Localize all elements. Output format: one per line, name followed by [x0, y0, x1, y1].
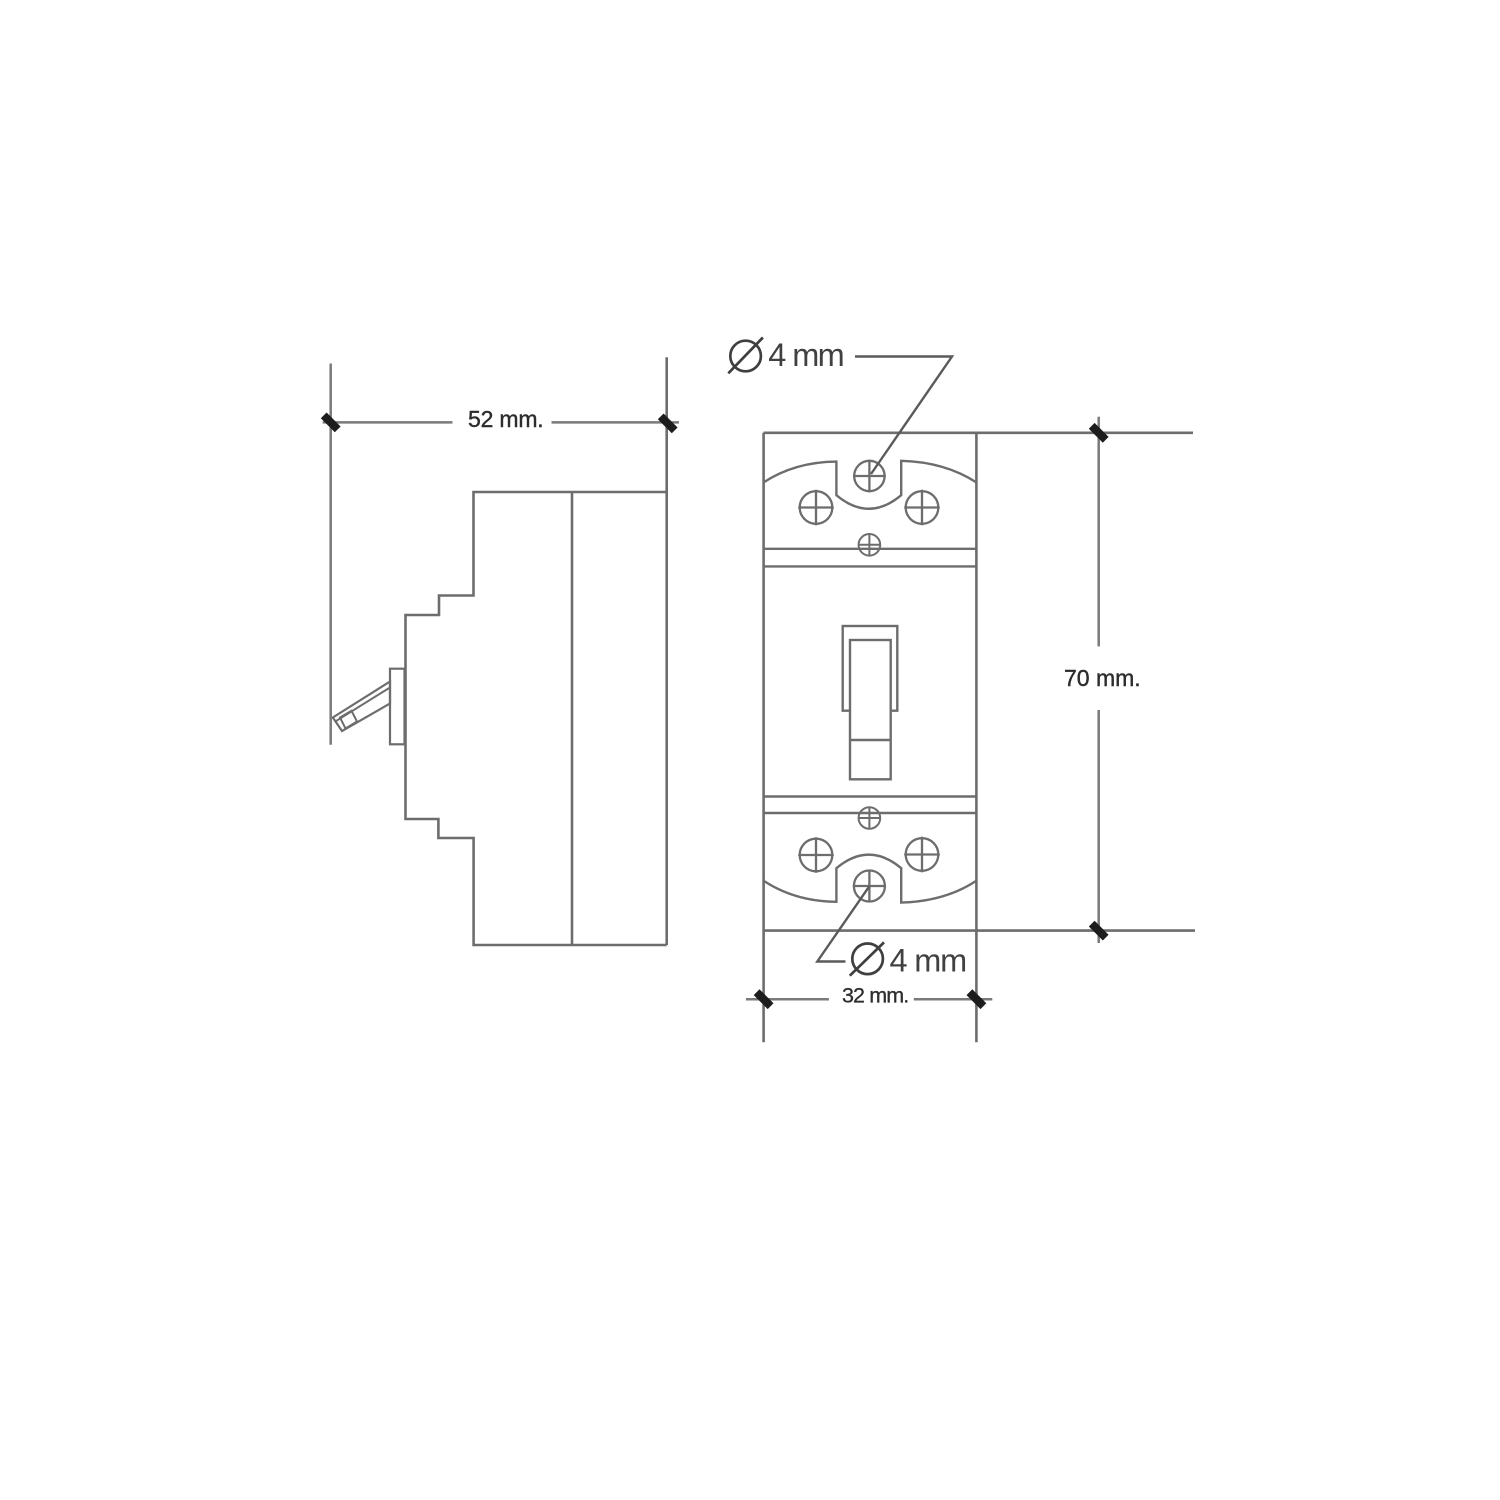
svg-text:4 mm: 4 mm	[768, 337, 843, 373]
svg-text:32 mm.: 32 mm.	[842, 984, 908, 1008]
svg-text:4 mm: 4 mm	[890, 943, 966, 979]
svg-text:52 mm.: 52 mm.	[468, 406, 543, 432]
svg-text:70 mm.: 70 mm.	[1064, 665, 1141, 691]
